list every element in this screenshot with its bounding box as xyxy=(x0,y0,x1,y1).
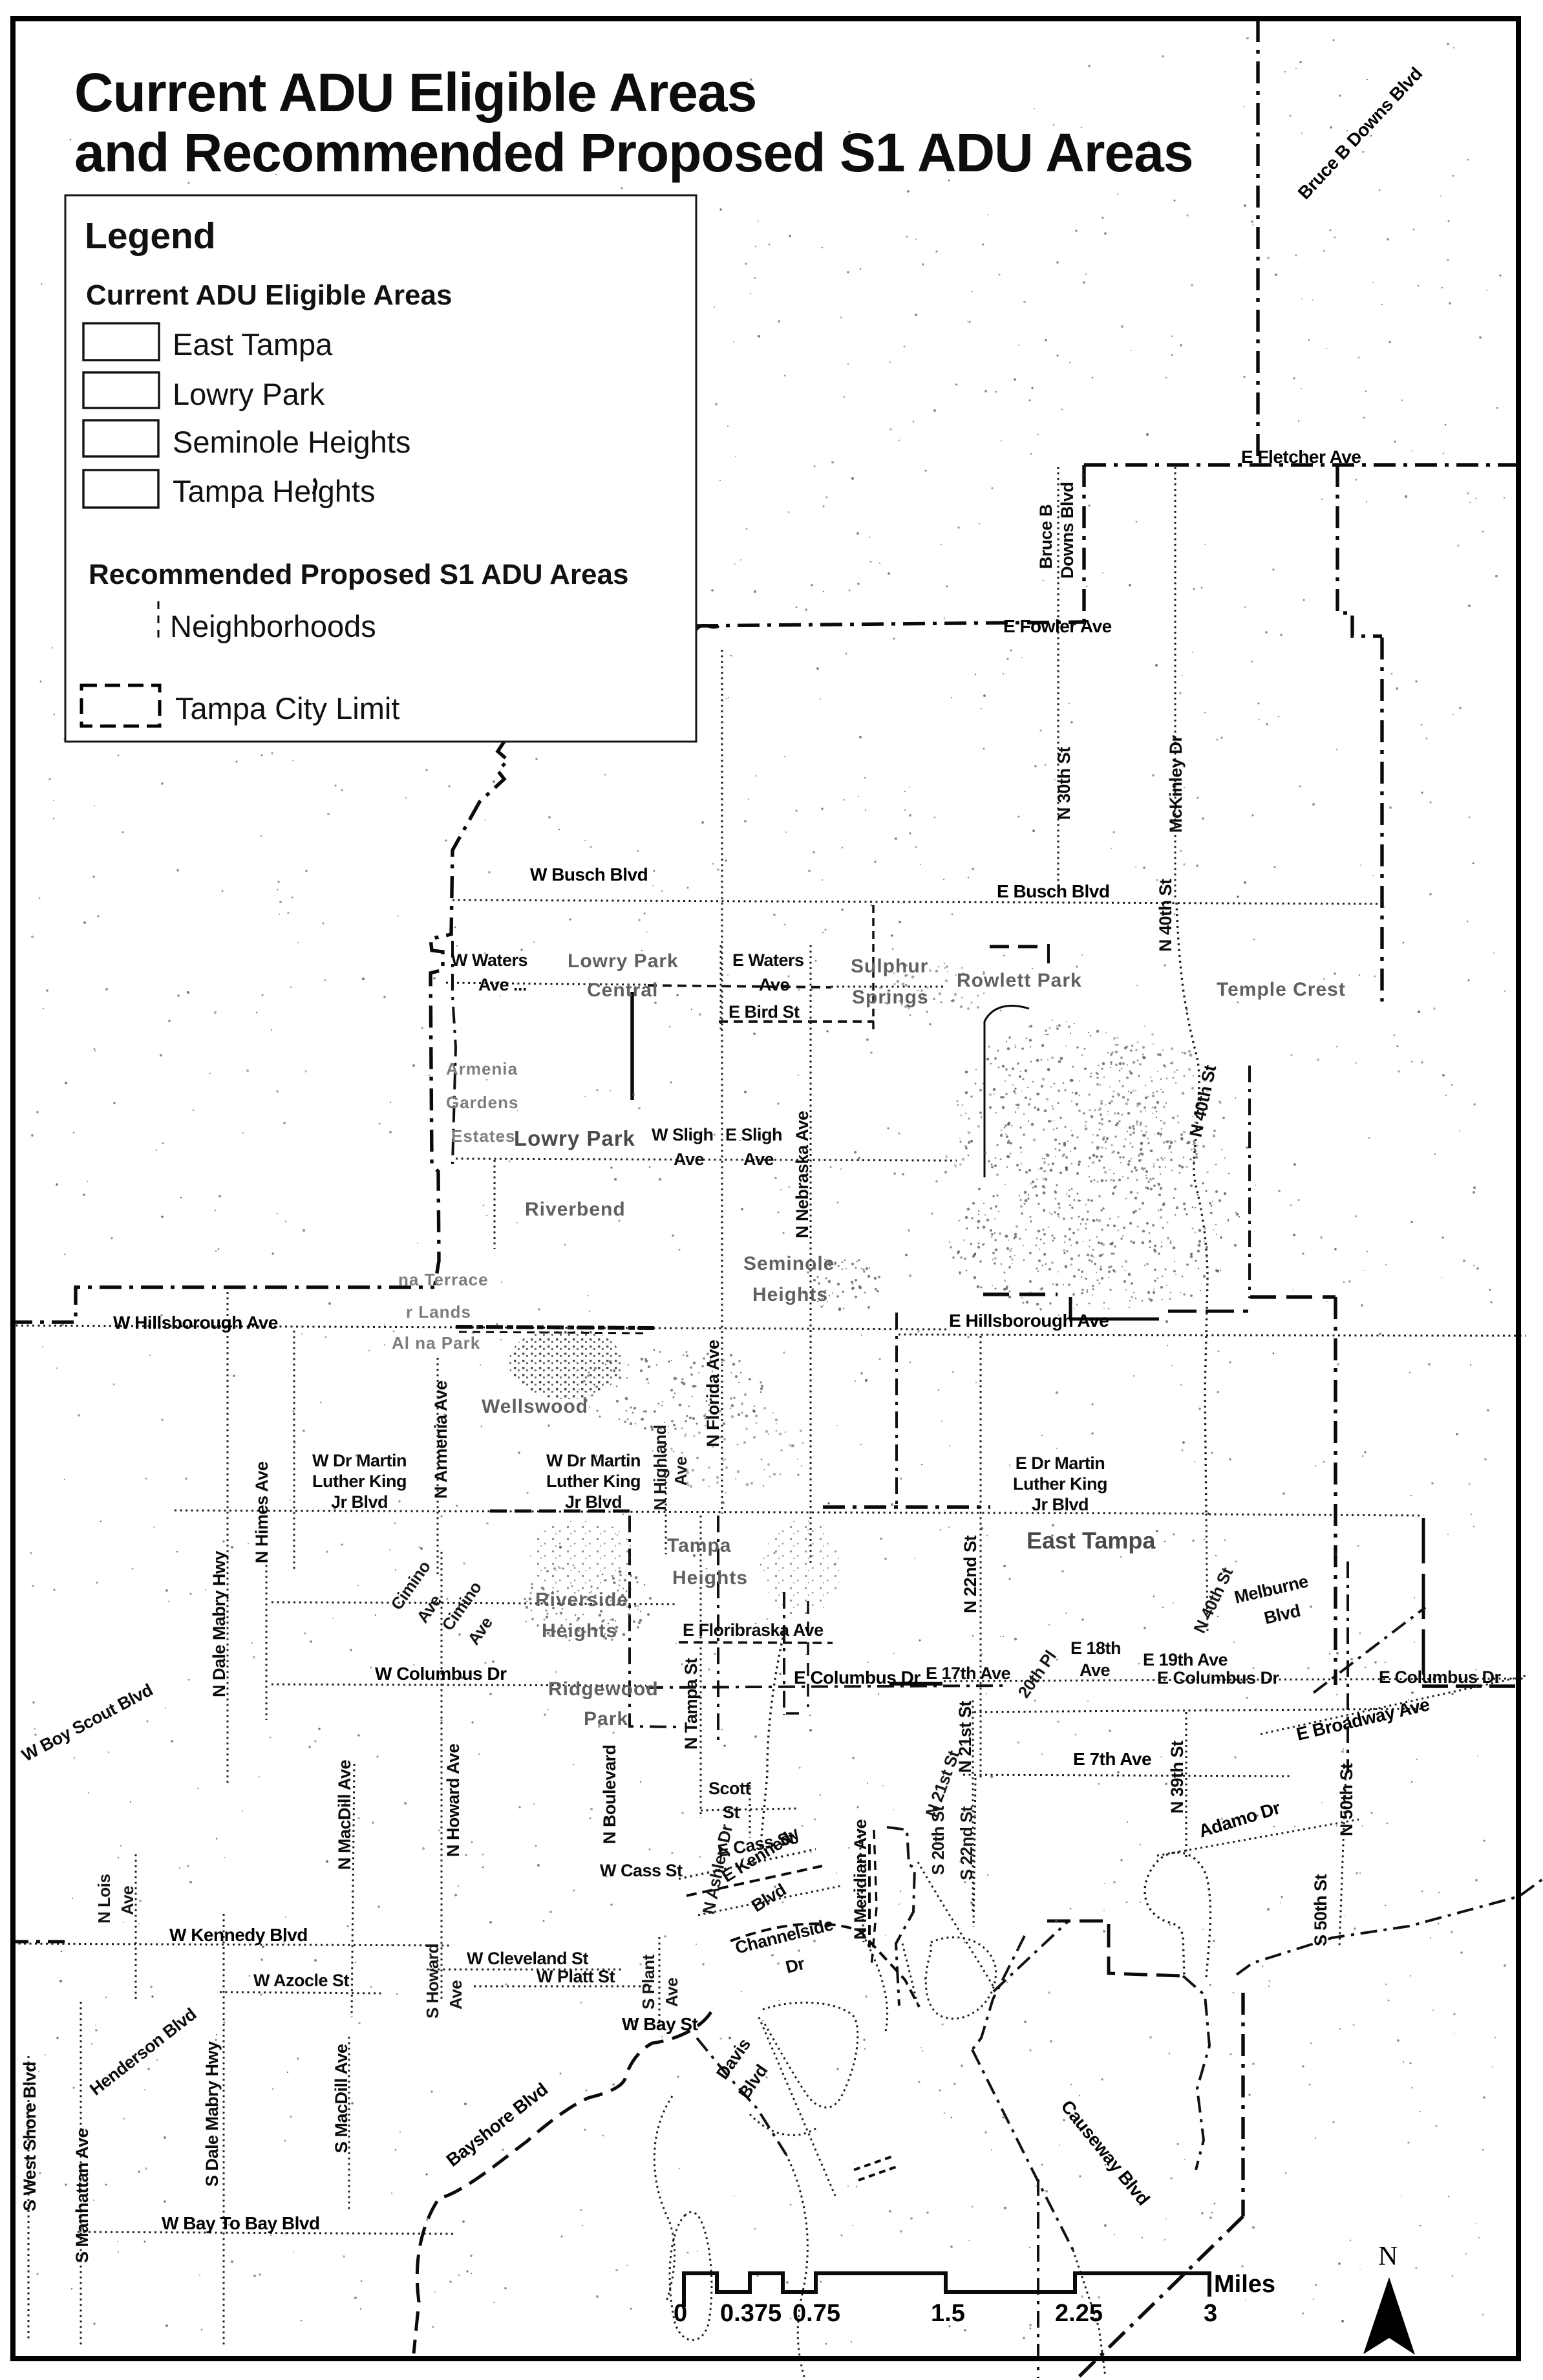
svg-text:S Howard: S Howard xyxy=(423,1944,442,2019)
svg-text:E Floribraska Ave: E Floribraska Ave xyxy=(683,1620,824,1640)
svg-text:N Meridian Ave: N Meridian Ave xyxy=(851,1819,870,1940)
svg-text:Luther King: Luther King xyxy=(312,1472,407,1491)
svg-text:E Busch Blvd: E Busch Blvd xyxy=(997,881,1109,901)
svg-text:Seminole Heights: Seminole Heights xyxy=(173,425,410,459)
svg-text:N 39th St: N 39th St xyxy=(1167,1741,1187,1814)
svg-text:W Hillsborough Ave: W Hillsborough Ave xyxy=(113,1313,278,1333)
svg-text:Lowry Park: Lowry Park xyxy=(514,1126,635,1150)
svg-text:McKinley Dr: McKinley Dr xyxy=(1166,734,1186,833)
svg-text:E Columbus Dr: E Columbus Dr xyxy=(1157,1668,1280,1688)
svg-text:Gardens: Gardens xyxy=(446,1093,519,1112)
svg-text:Scott: Scott xyxy=(708,1779,751,1798)
svg-text:0.375: 0.375 xyxy=(720,2300,782,2327)
svg-text:1.5: 1.5 xyxy=(931,2300,965,2327)
svg-text:W Kennedy Blvd: W Kennedy Blvd xyxy=(169,1925,308,1945)
svg-text:Current ADU Eligible Areas: Current ADU Eligible Areas xyxy=(86,279,452,311)
svg-text:Ave: Ave xyxy=(743,1150,774,1169)
svg-text:Sulphur: Sulphur xyxy=(851,956,928,977)
svg-text:N Lois: N Lois xyxy=(94,1874,114,1924)
svg-text:Luther King: Luther King xyxy=(546,1472,641,1491)
svg-text:W Bay St: W Bay St xyxy=(622,2014,698,2034)
svg-text:N Himes Ave: N Himes Ave xyxy=(252,1461,271,1563)
svg-text:Heights: Heights xyxy=(752,1284,828,1305)
svg-text:na Terrace: na Terrace xyxy=(398,1270,489,1289)
svg-text:Ave: Ave xyxy=(446,1980,465,2010)
svg-text:N Armenia Ave: N Armenia Ave xyxy=(431,1380,451,1499)
svg-text:Miles: Miles xyxy=(1214,2271,1275,2298)
svg-text:N Tampa St: N Tampa St xyxy=(681,1658,701,1750)
svg-text:N 50th St: N 50th St xyxy=(1337,1763,1356,1836)
svg-text:W Cass St: W Cass St xyxy=(600,1861,683,1880)
svg-text:Jr Blvd: Jr Blvd xyxy=(331,1492,388,1512)
svg-text:N MacDill Ave: N MacDill Ave xyxy=(335,1759,354,1870)
svg-text:Riverside: Riverside xyxy=(535,1589,628,1611)
svg-text:E 18th: E 18th xyxy=(1070,1638,1121,1658)
svg-text:Lowry Park: Lowry Park xyxy=(568,950,679,972)
svg-text:and Recommended Proposed S1 AD: and Recommended Proposed S1 ADU Areas xyxy=(74,122,1193,183)
svg-text:Lowry Park: Lowry Park xyxy=(173,377,325,411)
svg-text:S 50th St: S 50th St xyxy=(1311,1874,1330,1946)
svg-text:Ave: Ave xyxy=(759,975,790,994)
svg-text:Estates: Estates xyxy=(451,1126,516,1146)
svg-text:W Sligh: W Sligh xyxy=(652,1125,713,1144)
svg-text:N Highland: N Highland xyxy=(650,1425,670,1510)
svg-text:0: 0 xyxy=(674,2300,687,2327)
svg-text:N Howard Ave: N Howard Ave xyxy=(443,1743,463,1857)
svg-text:Ave: Ave xyxy=(662,1978,681,2007)
svg-text:W Cleveland St: W Cleveland St xyxy=(467,1949,589,1968)
svg-text:Seminole: Seminole xyxy=(743,1253,835,1274)
svg-text:E Fowler Ave: E Fowler Ave xyxy=(1003,616,1112,636)
svg-text:N Boulevard: N Boulevard xyxy=(600,1744,619,1844)
svg-text:N 30th St: N 30th St xyxy=(1054,747,1074,820)
svg-text:W Waters: W Waters xyxy=(451,950,527,970)
svg-text:Central: Central xyxy=(587,980,658,1001)
svg-text:East Tampa: East Tampa xyxy=(1027,1527,1156,1554)
svg-text:Wellswood: Wellswood xyxy=(482,1396,588,1417)
svg-text:E Fletcher Ave: E Fletcher Ave xyxy=(1241,447,1361,467)
svg-text:2.25: 2.25 xyxy=(1055,2300,1103,2327)
svg-text:E Dr Martin: E Dr Martin xyxy=(1016,1453,1105,1473)
svg-text:W Azocle St: W Azocle St xyxy=(253,1971,350,1990)
svg-text:Ave: Ave xyxy=(671,1457,690,1486)
svg-text:Jr Blvd: Jr Blvd xyxy=(565,1492,622,1512)
svg-text:W Dr Martin: W Dr Martin xyxy=(312,1451,407,1470)
svg-text:W Columbus Dr: W Columbus Dr xyxy=(375,1664,507,1684)
svg-text:S West Shore Blvd: S West Shore Blvd xyxy=(20,2062,39,2211)
svg-text:Armenia: Armenia xyxy=(446,1059,518,1078)
svg-text:East Tampa: East Tampa xyxy=(173,327,333,361)
svg-text:N Dale Mabry Hwy: N Dale Mabry Hwy xyxy=(209,1550,229,1697)
svg-text:S Dale Mabry Hwy: S Dale Mabry Hwy xyxy=(202,2041,222,2187)
svg-text:E 17th Ave: E 17th Ave xyxy=(926,1664,1011,1683)
svg-text:E Hillsborough Ave: E Hillsborough Ave xyxy=(949,1311,1109,1331)
svg-text:W Bay To Bay Blvd: W Bay To Bay Blvd xyxy=(162,2213,320,2233)
svg-text:S Manhattan Ave: S Manhattan Ave xyxy=(72,2128,92,2263)
svg-text:Al na Park: Al na Park xyxy=(392,1333,480,1353)
svg-text:E Columbus Dr: E Columbus Dr xyxy=(1379,1667,1502,1687)
svg-text:Tampa: Tampa xyxy=(667,1535,731,1556)
svg-text:N: N xyxy=(1378,2242,1398,2271)
svg-text:Tampa City Limit: Tampa City Limit xyxy=(175,691,399,725)
svg-text:Current ADU Eligible Areas: Current ADU Eligible Areas xyxy=(74,62,756,123)
svg-text:E 19th Ave: E 19th Ave xyxy=(1143,1650,1228,1669)
svg-text:E Columbus Dr: E Columbus Dr xyxy=(794,1667,920,1688)
svg-text:E 7th Ave: E 7th Ave xyxy=(1073,1749,1151,1769)
svg-text:Neighborhoods: Neighborhoods xyxy=(170,609,376,643)
svg-text:Downs Blvd: Downs Blvd xyxy=(1058,482,1077,579)
svg-text:0.75: 0.75 xyxy=(793,2300,840,2327)
svg-text:Legend: Legend xyxy=(85,215,216,257)
svg-text:N 40th St: N 40th St xyxy=(1156,879,1175,952)
svg-text:S 20th St: S 20th St xyxy=(928,1805,948,1875)
svg-text:Tampa Heights: Tampa Heights xyxy=(173,474,376,508)
svg-text:Luther King: Luther King xyxy=(1013,1474,1107,1494)
svg-text:Rowlett Park: Rowlett Park xyxy=(957,970,1082,991)
svg-text:Ave: Ave xyxy=(1080,1660,1111,1680)
svg-text:W Platt St: W Platt St xyxy=(537,1967,615,1986)
svg-text:Ave ...: Ave ... xyxy=(478,975,527,994)
svg-text:Ave: Ave xyxy=(674,1150,705,1169)
svg-text:E Waters: E Waters xyxy=(732,950,804,970)
svg-text:S MacDill Ave: S MacDill Ave xyxy=(332,2044,351,2153)
svg-text:Recommended Proposed S1 ADU Ar: Recommended Proposed S1 ADU Areas xyxy=(89,559,628,590)
svg-text:Riverbend: Riverbend xyxy=(525,1199,626,1220)
svg-text:S 22nd St: S 22nd St xyxy=(957,1806,976,1880)
svg-text:r Lands: r Lands xyxy=(406,1302,471,1322)
svg-text:Park: Park xyxy=(584,1708,628,1730)
svg-text:N Nebraska Ave: N Nebraska Ave xyxy=(793,1111,812,1238)
svg-text:Ridgewood: Ridgewood xyxy=(548,1678,659,1700)
svg-text:Jr Blvd: Jr Blvd xyxy=(1032,1495,1089,1514)
svg-text:W Dr Martin: W Dr Martin xyxy=(546,1451,641,1470)
svg-text:W Busch Blvd: W Busch Blvd xyxy=(530,864,648,884)
svg-text:Ave: Ave xyxy=(118,1886,137,1915)
svg-text:N Florida Ave: N Florida Ave xyxy=(703,1340,723,1447)
svg-text:E Bird St: E Bird St xyxy=(729,1002,800,1022)
svg-text:St: St xyxy=(723,1803,740,1822)
svg-text:E Sligh: E Sligh xyxy=(725,1125,782,1144)
svg-text:Heights: Heights xyxy=(542,1620,617,1642)
svg-text:Heights: Heights xyxy=(672,1567,748,1589)
svg-text:Bruce B: Bruce B xyxy=(1036,504,1056,569)
svg-text:Temple Crest: Temple Crest xyxy=(1217,979,1346,1000)
svg-text:3: 3 xyxy=(1204,2300,1217,2327)
svg-text:N 22nd St: N 22nd St xyxy=(961,1535,980,1613)
svg-text:S Plant: S Plant xyxy=(639,1955,658,2010)
svg-text:Springs: Springs xyxy=(852,987,929,1008)
